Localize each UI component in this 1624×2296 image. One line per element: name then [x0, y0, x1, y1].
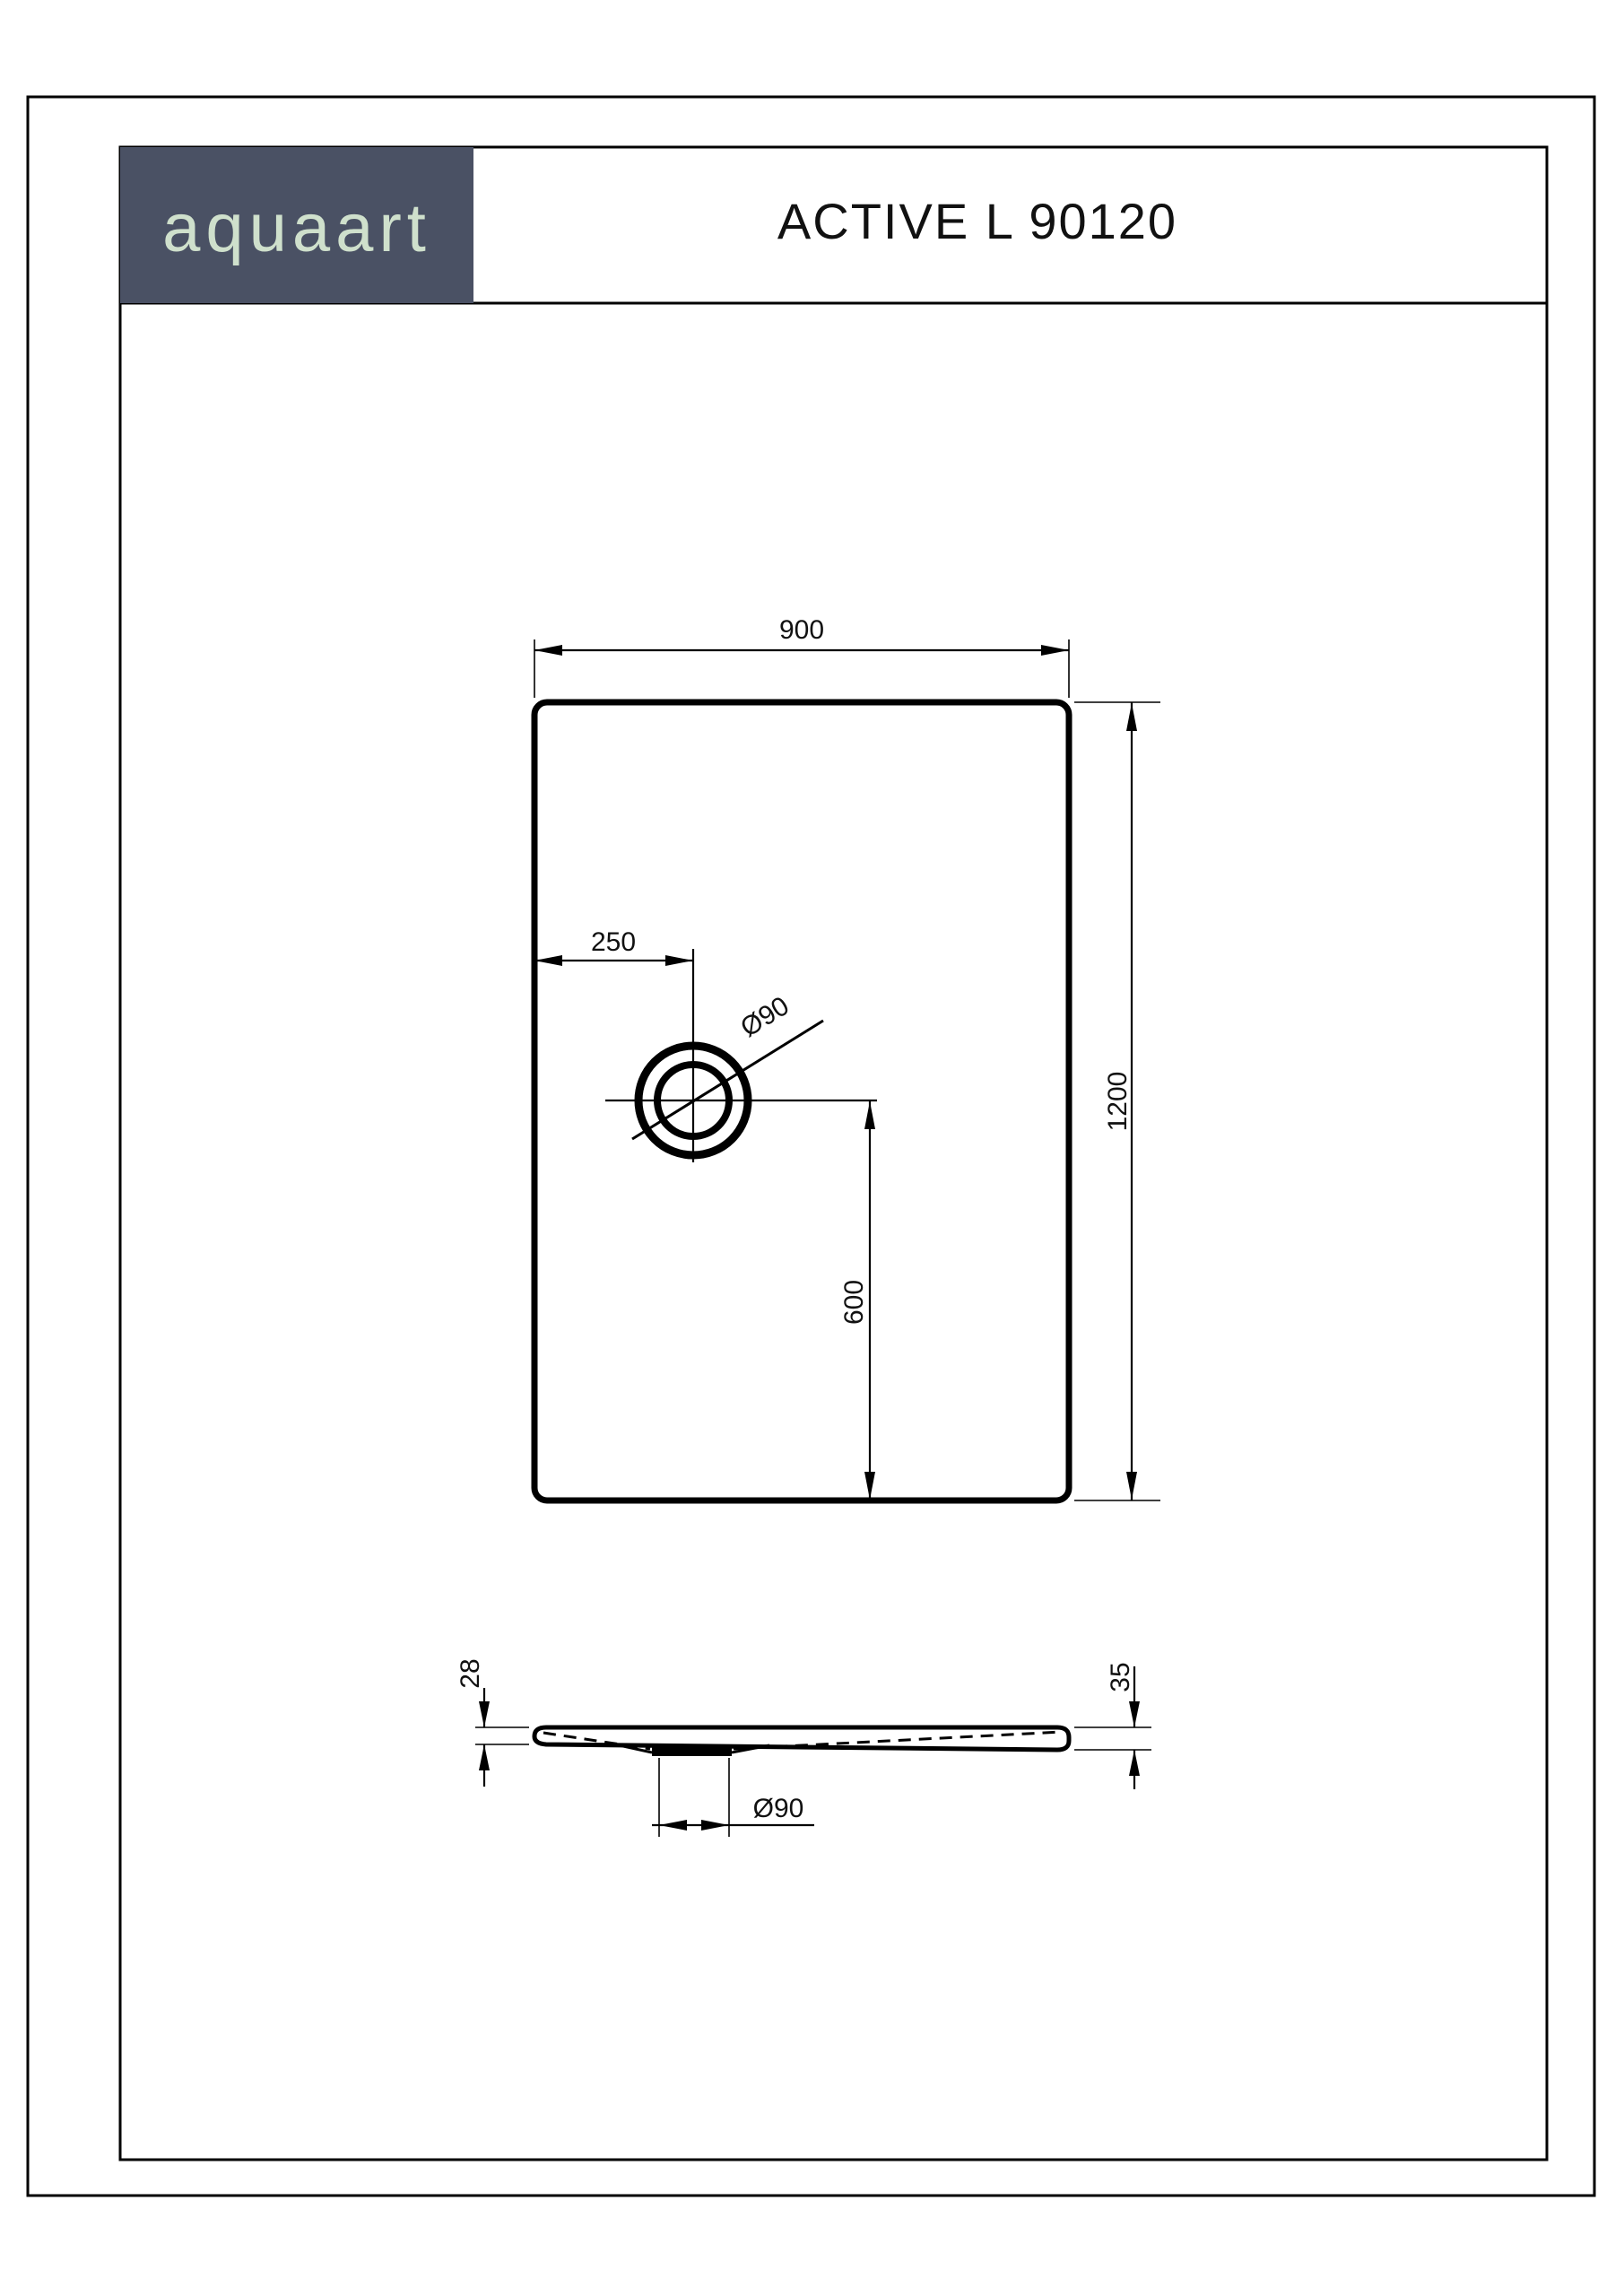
- section-view: 28 35 Ø90: [456, 1658, 1151, 1837]
- brand-logo: aquaart: [162, 190, 431, 266]
- dim-label-900: 900: [779, 615, 824, 645]
- drain-boss: [652, 1747, 732, 1756]
- drawing-canvas: aquaart ACTIVE L 90120 900 1200: [0, 0, 1624, 2296]
- outer-page-border: [28, 97, 1594, 2196]
- dimension-1200: 1200: [1074, 702, 1160, 1500]
- dim-label-drain-diameter-plan: Ø90: [735, 991, 795, 1043]
- dimension-250: 250: [534, 927, 693, 966]
- dim-label-250: 250: [591, 927, 636, 957]
- dimension-drain-diameter-section: Ø90: [652, 1758, 814, 1837]
- dim-label-1200: 1200: [1103, 1072, 1133, 1132]
- dim-label-drain-diameter-section: Ø90: [753, 1794, 804, 1823]
- dim-label-35: 35: [1106, 1662, 1135, 1692]
- dim-label-600: 600: [839, 1280, 869, 1325]
- dim-label-28: 28: [456, 1658, 485, 1688]
- dimension-900: 900: [534, 615, 1069, 698]
- dimension-28: 28: [456, 1658, 529, 1787]
- drain-plan: Ø90: [605, 949, 877, 1162]
- inner-drawing-frame: [120, 147, 1547, 2160]
- drawing-title: ACTIVE L 90120: [777, 193, 1177, 249]
- dimension-35: 35: [1074, 1662, 1151, 1789]
- dimension-600: 600: [839, 1100, 875, 1500]
- plan-view: 900 1200 250 Ø90: [534, 615, 1160, 1500]
